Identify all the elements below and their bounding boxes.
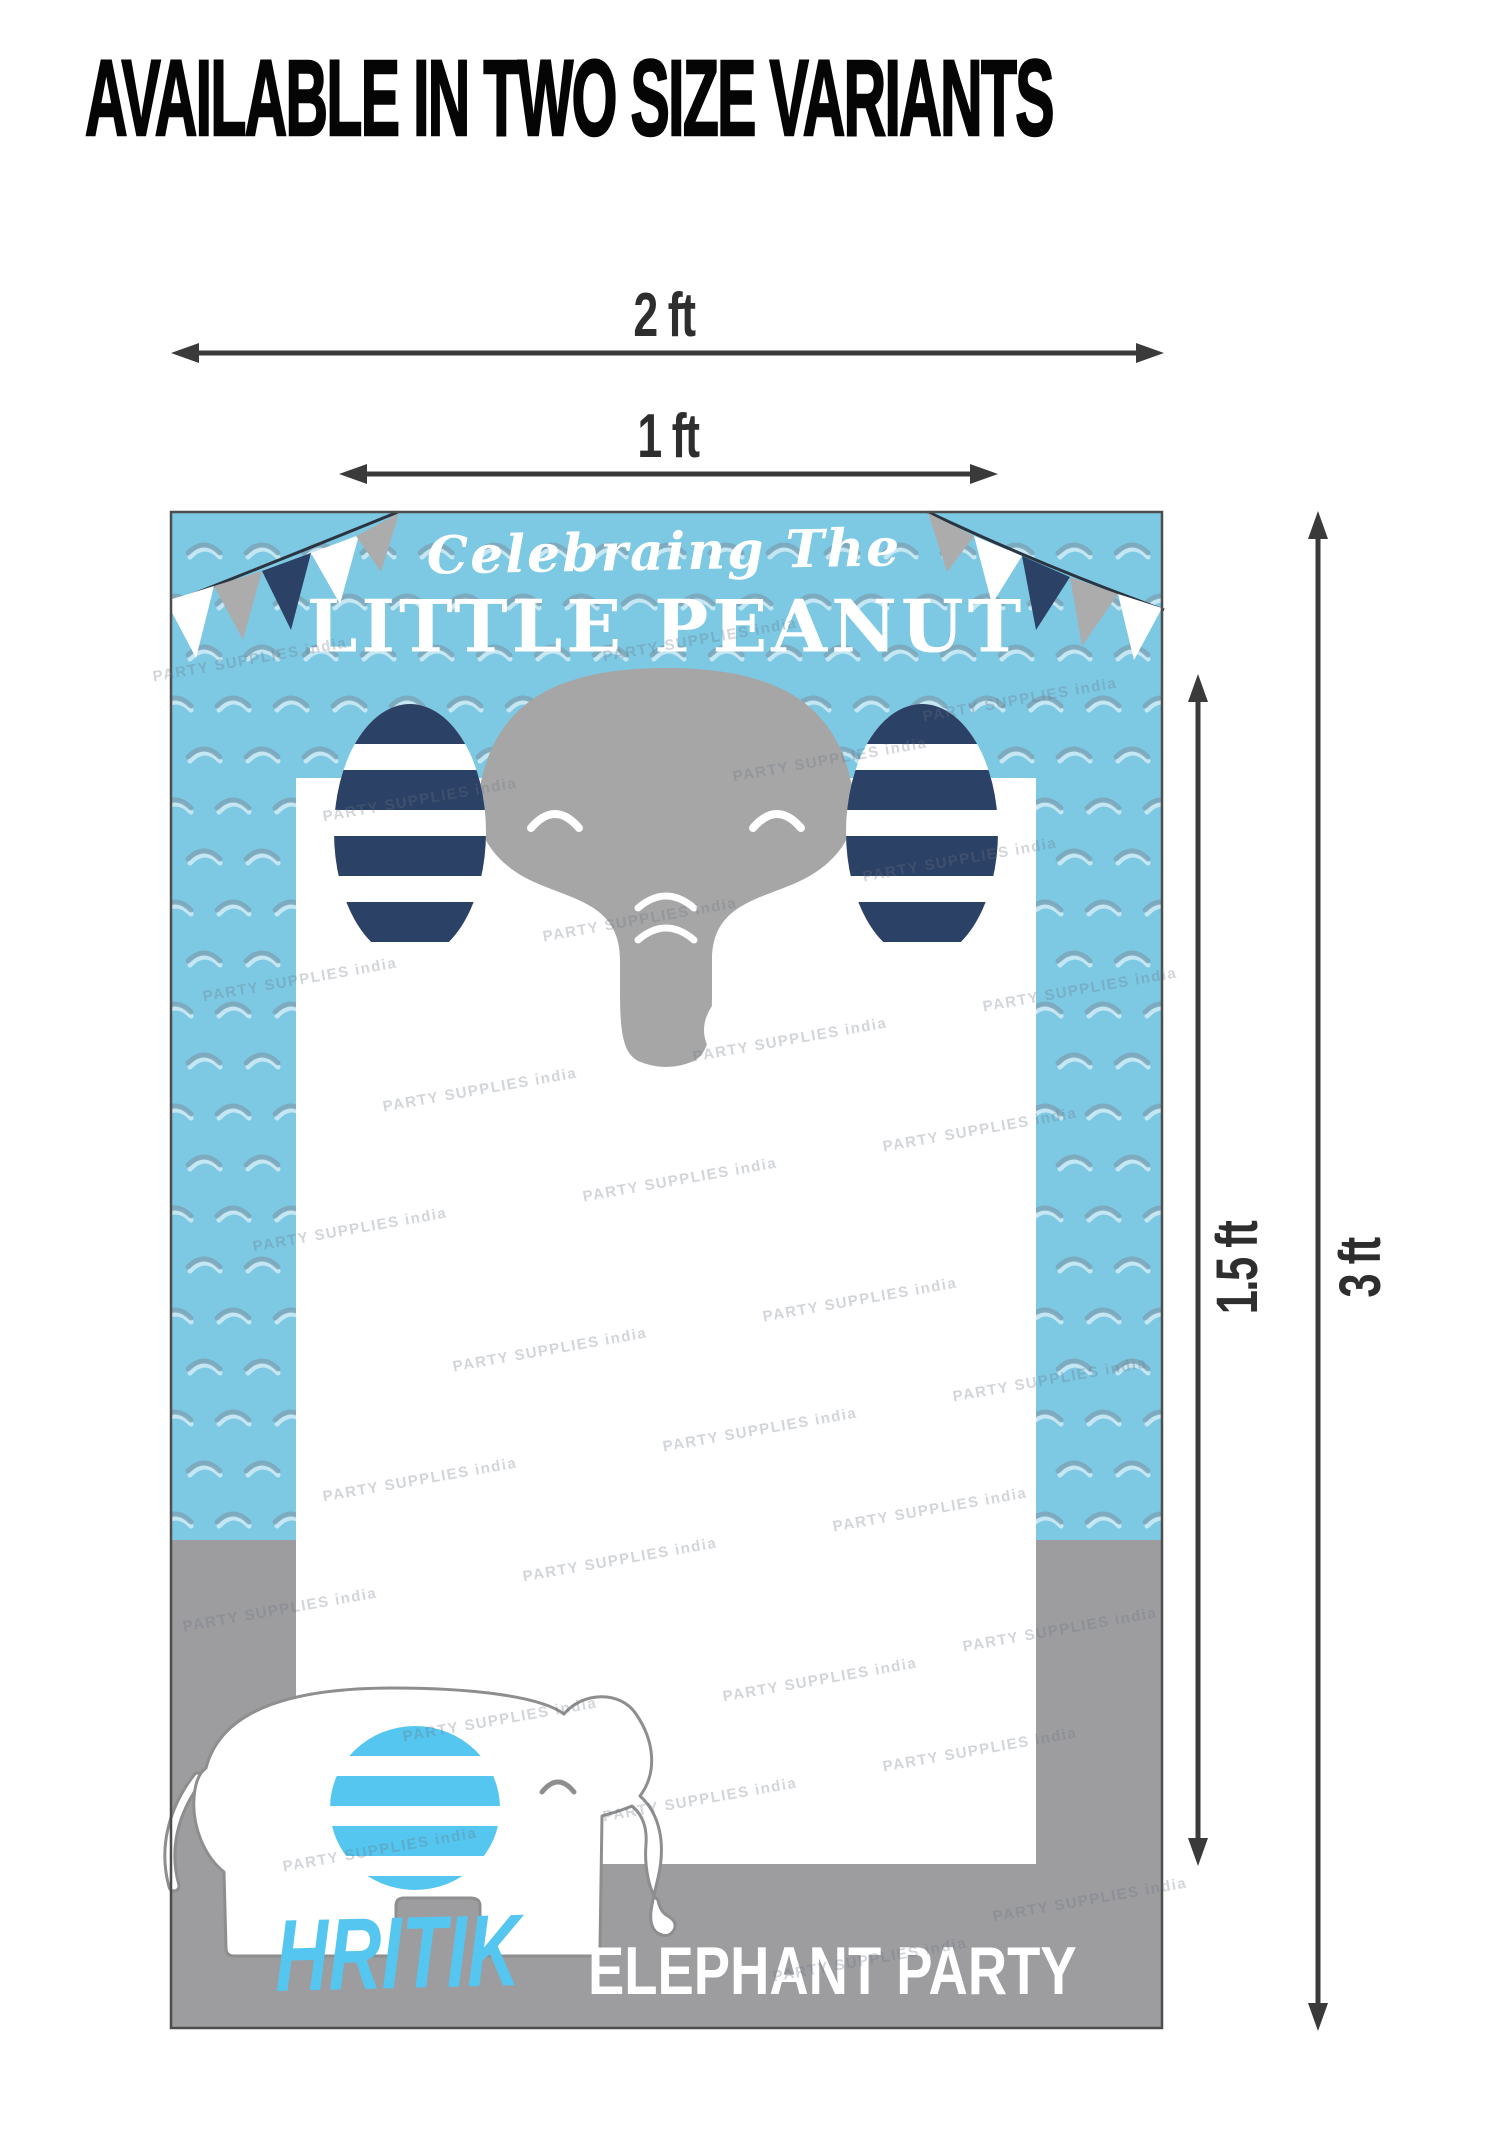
size-diagram-graphic: [0, 0, 1500, 2143]
height-label-1-5ft: 1.5 ft: [1209, 1222, 1267, 1315]
poster-subtitle: ELEPHANT PARTY: [588, 1938, 1077, 2004]
child-name-text: HRITIK: [275, 1899, 521, 2007]
product-size-chart: AVAILABLE IN TWO SIZE VARIANTS: [0, 0, 1500, 2143]
width-label-1ft: 1 ft: [637, 406, 698, 468]
arrow-height-3ft: [1308, 511, 1328, 2031]
poster-tagline: Celebraing The: [426, 517, 901, 586]
poster-heading: LITTLE PEANUT: [307, 584, 1026, 669]
height-label-3ft: 3 ft: [1332, 1238, 1390, 1297]
width-label-2ft: 2 ft: [633, 285, 694, 347]
